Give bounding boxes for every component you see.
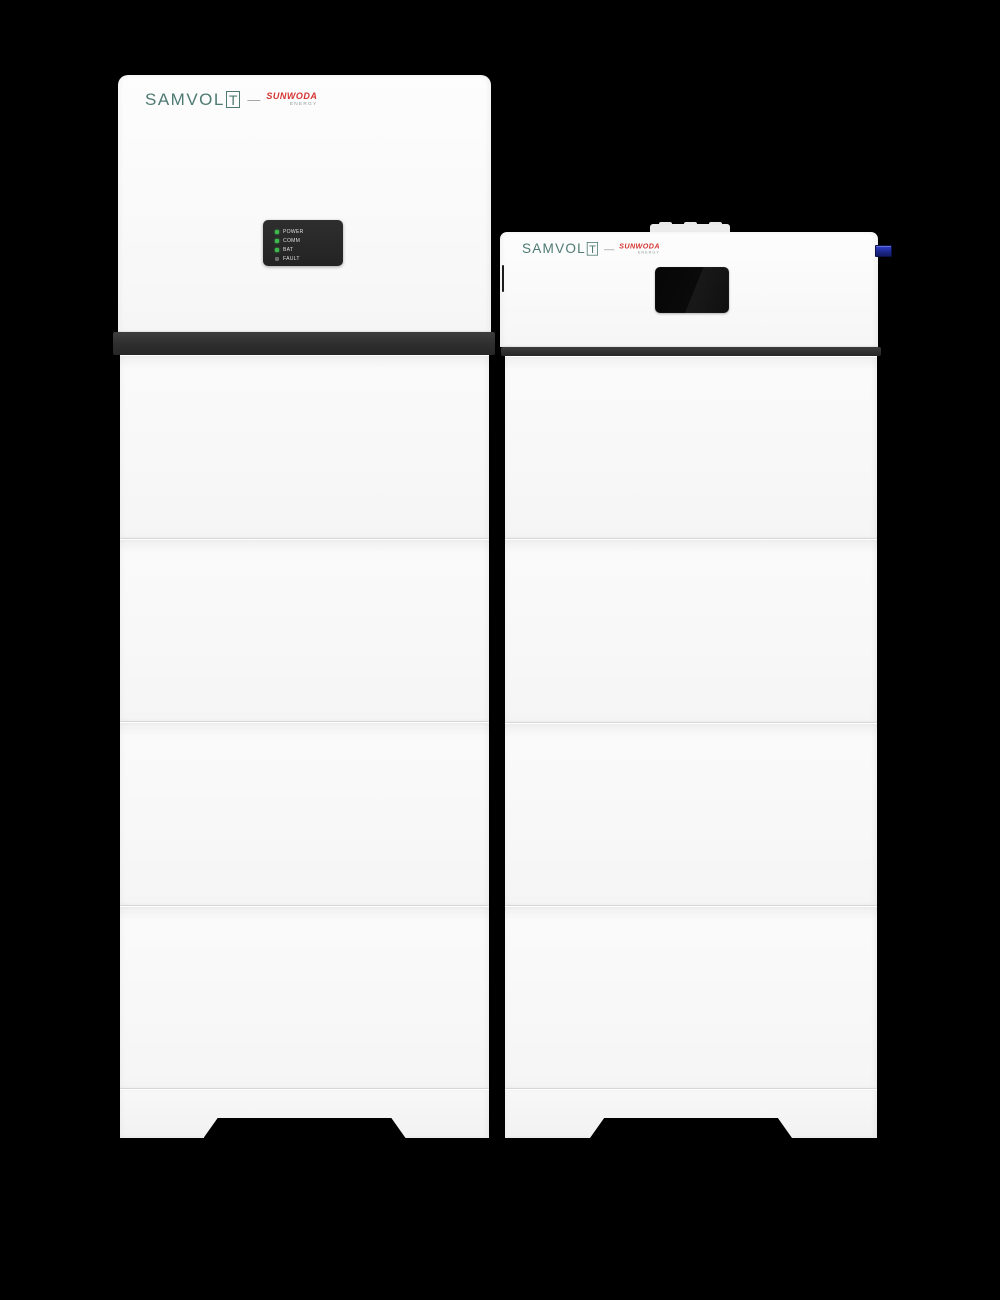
product-photo-stage: SAMVOL T — SUNWODA ENERGY POWER COMM: [0, 0, 1000, 1300]
display-screen: [655, 267, 729, 313]
battery-module: [505, 538, 877, 721]
tower-base: [120, 1088, 489, 1138]
separator-band: [501, 347, 881, 356]
power-led-icon: [275, 230, 279, 234]
led-row-power: POWER: [275, 227, 343, 236]
breaker-switch: [875, 245, 892, 257]
sunwoda-text: SUNWODA: [619, 242, 660, 249]
comm-led-icon: [275, 239, 279, 243]
sunwoda-energy-sub: ENERGY: [638, 250, 660, 254]
led-row-comm: COMM: [275, 236, 343, 245]
separator-band: [113, 332, 495, 355]
brand-dash: —: [604, 244, 614, 254]
sunwoda-logo: SUNWODA ENERGY: [266, 92, 317, 108]
brand-logo: SAMVOL T — SUNWODA ENERGY: [522, 242, 660, 256]
samvolt-wordmark: SAMVOL T: [522, 242, 598, 256]
battery-module: [505, 356, 877, 538]
battery-module: [120, 721, 489, 905]
battery-module-stack: [505, 356, 877, 1088]
samvolt-text: SAMVOL: [145, 91, 225, 108]
bat-led-label: BAT: [283, 247, 293, 252]
battery-module: [120, 905, 489, 1089]
power-led-label: POWER: [283, 229, 304, 234]
base-feet-gap: [204, 1118, 406, 1138]
battery-module: [120, 538, 489, 722]
handle-notch: [709, 222, 722, 225]
led-row-fault: FAULT: [275, 254, 343, 263]
base-feet-gap: [590, 1118, 792, 1138]
led-status-panel: POWER COMM BAT FAULT: [263, 220, 343, 266]
comm-led-label: COMM: [283, 238, 300, 243]
battery-module: [120, 355, 489, 538]
samvolt-boxed-letter: T: [226, 91, 241, 108]
fault-led-label: FAULT: [283, 256, 300, 261]
sunwoda-energy-sub: ENERGY: [290, 102, 317, 107]
control-front-panel: SAMVOL T — SUNWODA ENERGY: [500, 232, 878, 347]
handle-notch: [659, 222, 672, 225]
battery-tower-with-display: SAMVOL T — SUNWODA ENERGY: [500, 232, 878, 1137]
led-row-bat: BAT: [275, 245, 343, 254]
sunwoda-text: SUNWODA: [266, 92, 317, 101]
battery-module: [505, 722, 877, 905]
bat-led-icon: [275, 248, 279, 252]
sunwoda-logo: SUNWODA ENERGY: [619, 242, 660, 255]
samvolt-wordmark: SAMVOL T: [145, 91, 240, 108]
side-seam-mark: [502, 265, 504, 292]
battery-module: [505, 905, 877, 1088]
fault-led-icon: [275, 257, 279, 261]
samvolt-text: SAMVOL: [522, 242, 586, 256]
samvolt-boxed-letter: T: [587, 242, 599, 256]
brand-logo: SAMVOL T — SUNWODA ENERGY: [145, 91, 317, 108]
battery-module-stack: [120, 355, 489, 1088]
brand-dash: —: [247, 93, 260, 106]
inverter-front-panel: SAMVOL T — SUNWODA ENERGY POWER COMM: [118, 75, 491, 332]
inverter-battery-tower: SAMVOL T — SUNWODA ENERGY POWER COMM: [118, 75, 491, 1137]
tower-base: [505, 1088, 877, 1138]
handle-notch: [684, 222, 697, 225]
